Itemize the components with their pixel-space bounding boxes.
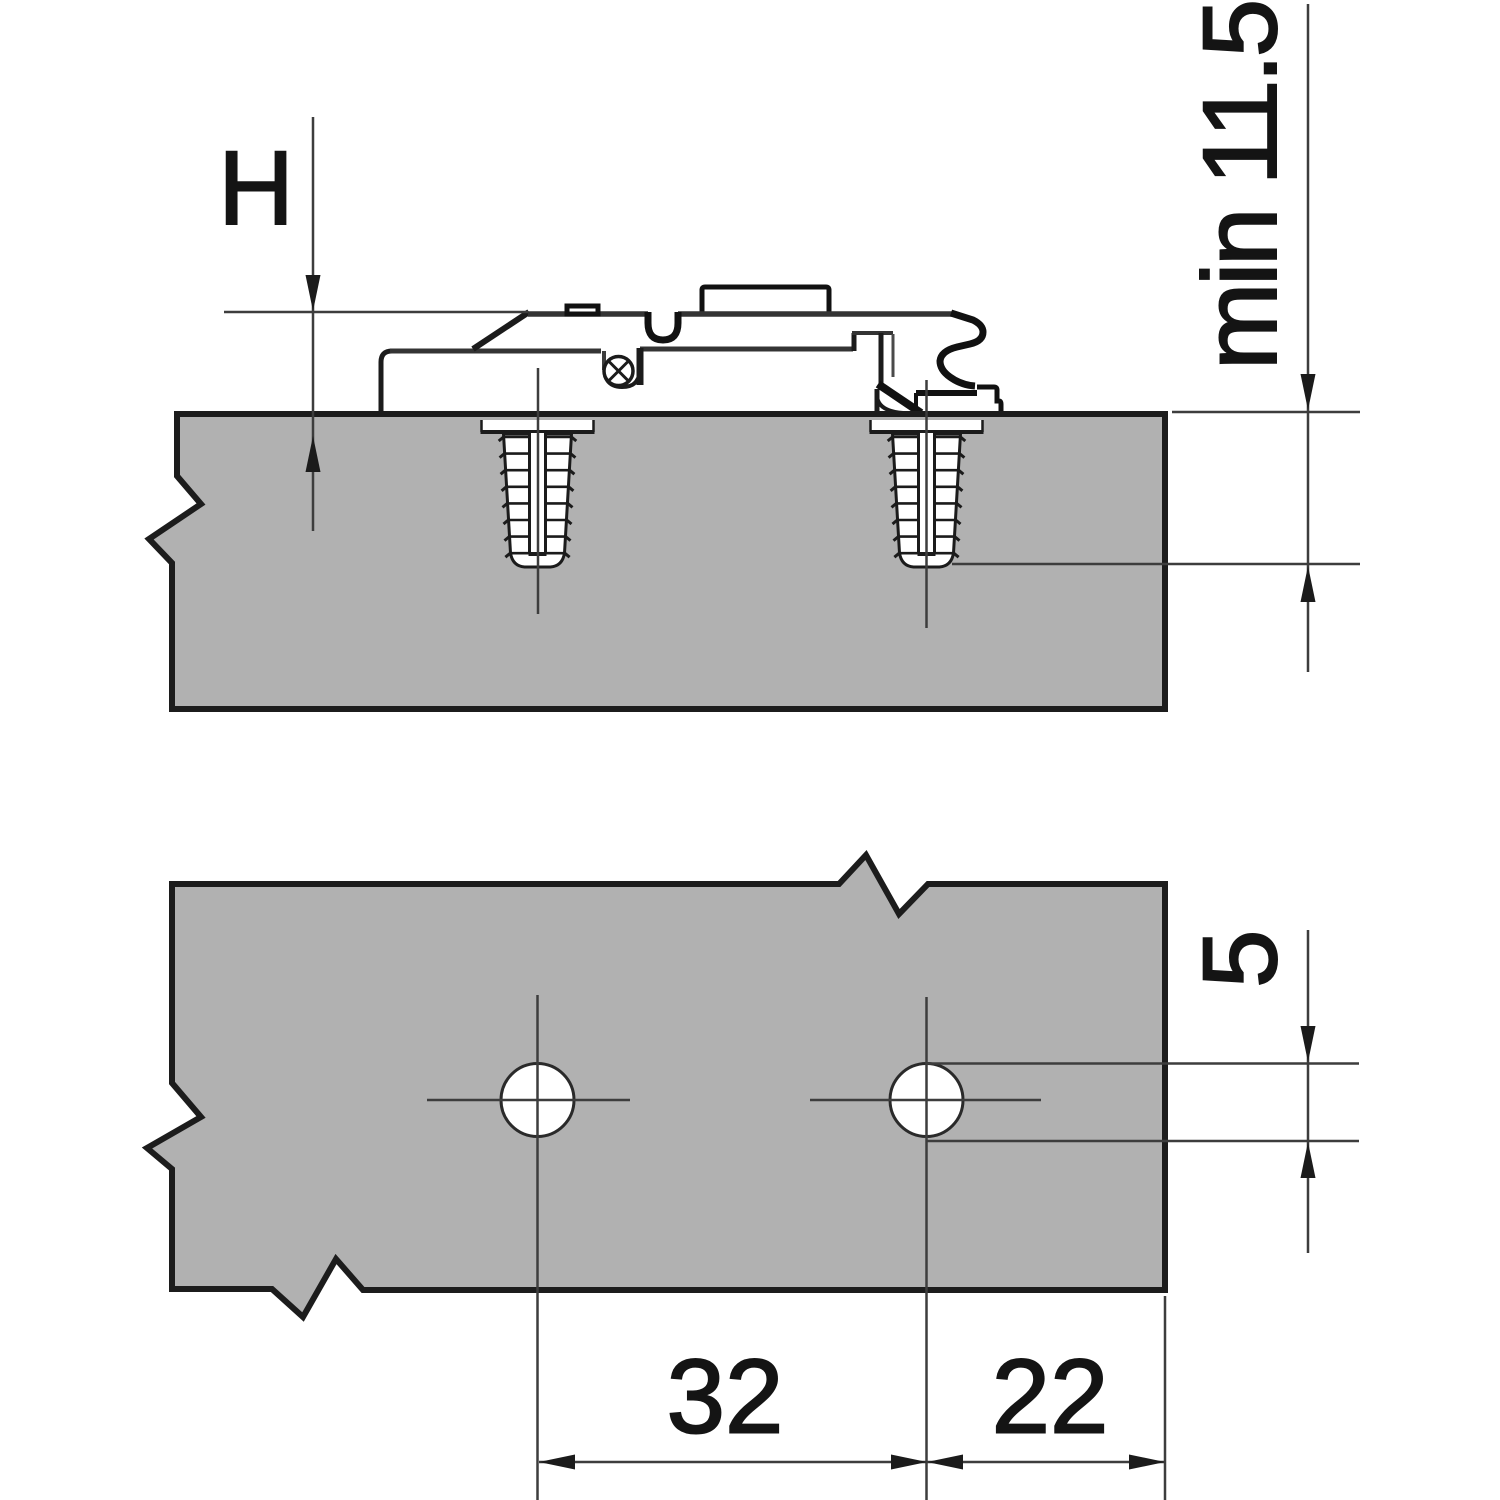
svg-text:5: 5 [1182,930,1299,988]
svg-text:32: 32 [667,1339,784,1456]
svg-text:22: 22 [992,1339,1109,1456]
svg-text:min 11.5: min 11.5 [1182,2,1299,370]
svg-text:H: H [218,130,294,247]
